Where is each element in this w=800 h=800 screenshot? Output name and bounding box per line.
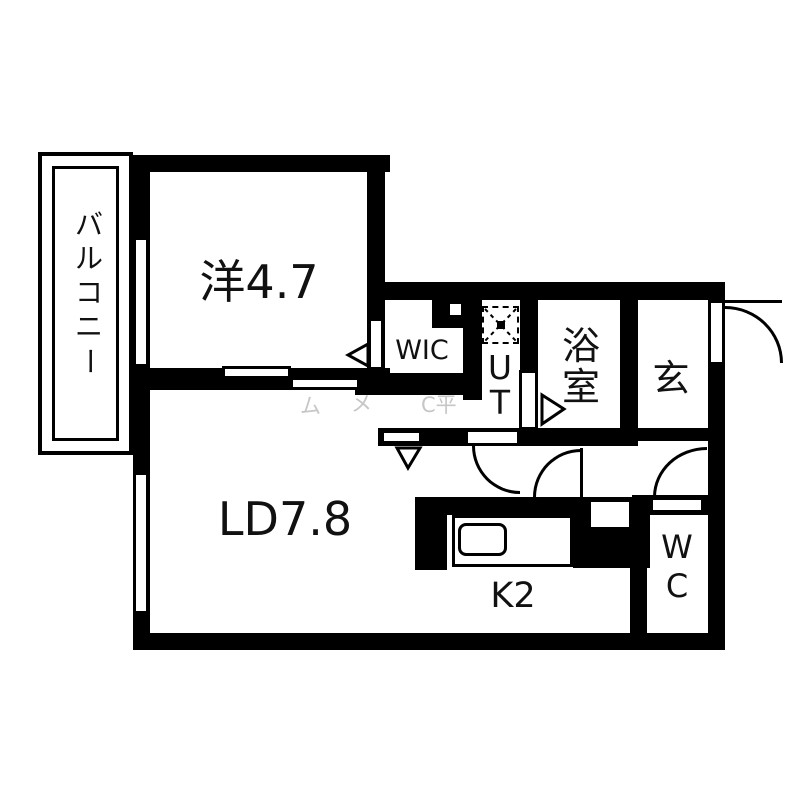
pipe-space [448, 302, 463, 317]
wall [367, 282, 725, 300]
kitchen-sink [458, 523, 507, 556]
window [133, 237, 149, 367]
wc-door-leaf [650, 497, 704, 513]
wall [463, 300, 482, 400]
hall-door-arc [472, 446, 520, 494]
wall [620, 282, 638, 446]
room-label-living: LD7.8 [185, 492, 385, 546]
door-direction-triangle-left [345, 341, 371, 369]
watermark-fragment: C平 [421, 389, 457, 419]
entrance-door-line [725, 300, 782, 303]
sliding-door-panel [222, 366, 291, 379]
wall [638, 428, 708, 441]
passage-door-leaf [382, 431, 421, 443]
room-label-kitchen: K2 [463, 576, 563, 616]
bath-door-leaf [519, 370, 538, 430]
wall [133, 155, 390, 172]
entrance-door-arc [725, 306, 783, 363]
floor-plan: 洋4.7 LD7.8 WIC K2 玄 バ ル コ ニ ー 浴 室 U T W … [0, 0, 800, 800]
room-label-entrance: 玄 [646, 348, 696, 402]
kitchen-door-leaf [588, 499, 632, 530]
window [133, 472, 149, 614]
entrance-door-leaf [708, 300, 725, 365]
washer-pan-drain [497, 321, 505, 329]
watermark-fragment: メ [351, 388, 372, 418]
room-label-utility: U T [483, 350, 517, 420]
room-label-wic: WIC [382, 335, 462, 366]
room-label-balcony: バ ル コ ニ ー [74, 208, 104, 378]
room-label-toilet: W C [656, 528, 698, 606]
hall-door-leaf [465, 429, 520, 446]
corridor-door-arc [533, 449, 581, 497]
corridor-door-line [580, 448, 583, 498]
washer-pan [482, 306, 519, 344]
sliding-door-panel [290, 377, 360, 390]
door-direction-triangle-down [394, 446, 423, 471]
wall [133, 633, 725, 650]
room-label-bath: 浴 室 [560, 326, 602, 408]
wall [630, 568, 647, 633]
wc-door-arc [653, 447, 707, 497]
room-label-bedroom: 洋4.7 [159, 246, 359, 312]
watermark-fragment: ム [300, 390, 321, 420]
wall [415, 497, 447, 570]
